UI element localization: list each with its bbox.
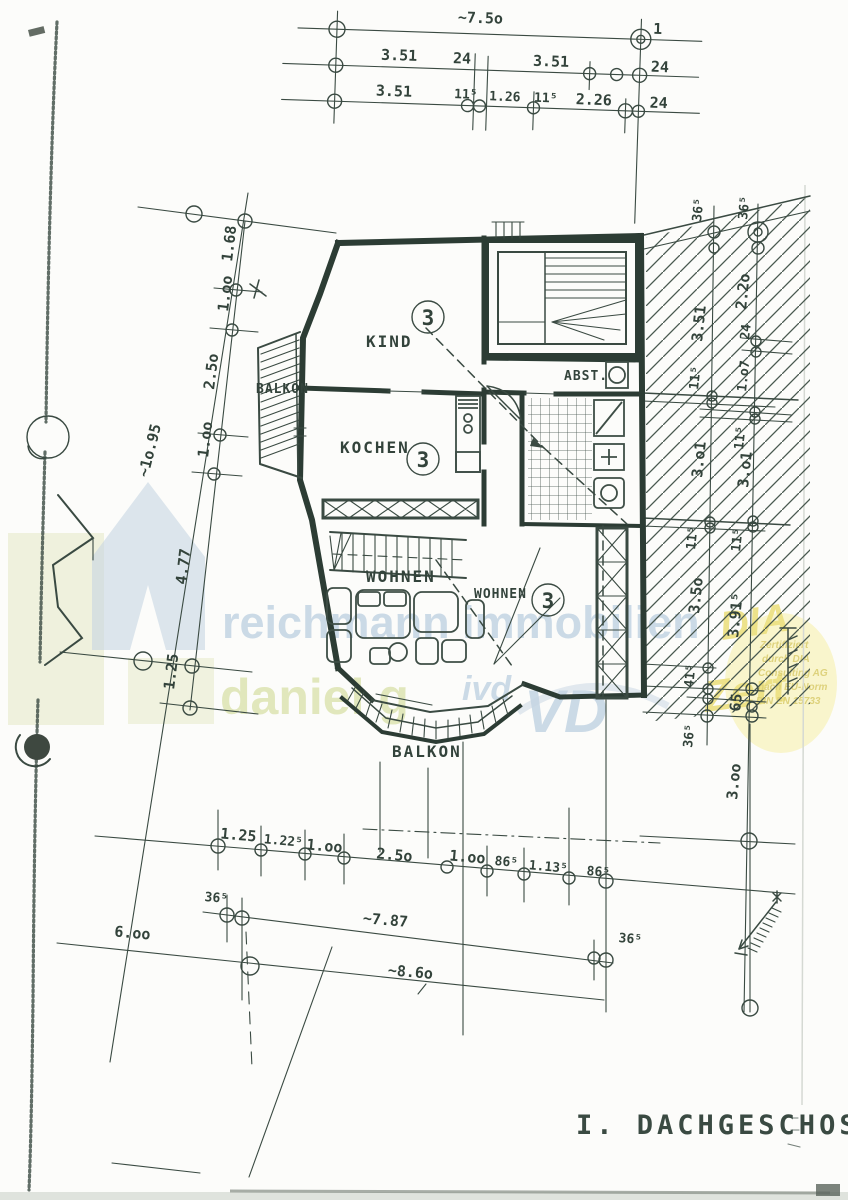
dim-label: 24: [738, 323, 755, 340]
dim-label: 3.oo: [723, 763, 745, 801]
dim-label: 3.51: [381, 46, 418, 65]
scanned-floorplan-page: reichmann immobilien daniel g ivd VD DIA…: [0, 0, 848, 1200]
dim-label: 1.25: [220, 824, 258, 845]
dim-label: 24: [651, 58, 670, 77]
dim-label: 86⁵: [494, 854, 519, 871]
building-plan: [250, 222, 644, 742]
dim-label: 41⁵: [682, 663, 699, 688]
tree-symbol: [27, 416, 69, 458]
dim-label: 11⁵: [534, 91, 558, 107]
tree-symbol: [24, 734, 50, 760]
brand-watermark-line2: daniel g: [220, 669, 409, 725]
slope-symbol: [735, 891, 781, 955]
dim-label: 3.o1: [688, 441, 710, 479]
dim-label: 1.oo: [194, 420, 216, 458]
bottom-dimension-chains: 1.25 1.22⁵ 1.oo 2.5o 1.oo 86⁵ 1.13⁵ 86⁵ …: [57, 700, 795, 1177]
dim-label: 1.22⁵: [263, 832, 303, 850]
dim-label: 3.51: [533, 52, 570, 71]
dim-label: ~7.87: [362, 909, 409, 931]
dim-label: 2.5o: [376, 844, 414, 865]
dim-label: 2.2o: [732, 273, 754, 311]
dim-label: 3.51: [376, 82, 413, 101]
dim-label: 24: [649, 94, 668, 113]
dim-label: 1.oo: [214, 274, 236, 312]
drawing-title: I. DACHGESCHOSS: [576, 1110, 848, 1141]
dim-label: 11⁵: [732, 425, 749, 450]
dim-label: 36⁵: [618, 931, 643, 948]
dim-label: 3.5o: [685, 577, 707, 615]
axis-number: 1: [653, 20, 663, 38]
room-label-abst: ABST.: [564, 369, 608, 384]
dim-top-overall: ~7.5o: [458, 8, 504, 27]
dim-overall-left: ~1o.95: [134, 422, 165, 479]
dim-label: 36⁵: [204, 890, 229, 907]
room-label-kind: KIND: [366, 332, 413, 351]
dim-label: 36⁵: [681, 723, 698, 748]
dim-label: 3.o1: [734, 451, 756, 489]
dim-label: 65: [726, 693, 746, 713]
unit-number: 3: [542, 589, 555, 613]
dim-label: 1.13⁵: [528, 858, 568, 876]
room-label-balkon-bottom: BALKON: [392, 742, 462, 761]
unit-number-badge: 3: [407, 443, 439, 475]
dim-label: 1.oo: [306, 835, 344, 856]
dim-label: 11⁵: [687, 365, 704, 390]
dim-label: 2.5o: [200, 352, 222, 390]
dim-label: 36⁵: [736, 195, 753, 220]
floorplan-drawing: reichmann immobilien daniel g ivd VD DIA…: [0, 0, 848, 1200]
dim-label: 11⁵: [729, 527, 746, 552]
bathroom-fixtures: [594, 400, 624, 508]
unit-number: 3: [422, 306, 435, 330]
bathroom-tiled-floor: [528, 398, 592, 520]
room-label-wohnen-b: WOHNEN: [474, 587, 527, 602]
loggia-railing: [323, 500, 478, 518]
room-label-balkon-left: BALKON: [256, 382, 309, 397]
dim-label: 24: [453, 49, 472, 68]
dim-label: 1.26: [489, 89, 521, 105]
dim-label: 1.68: [218, 224, 240, 262]
roof-hatch-area: [643, 196, 810, 722]
dim-label: 11⁵: [684, 525, 701, 550]
dim-label: 6.oo: [114, 922, 152, 943]
dim-label: 3.51: [688, 305, 710, 343]
dim-label: 86⁵: [586, 864, 611, 881]
top-dimension-grid: ~7.5o 1 3.51 24 3.51 24 3.51 11⁵ 1.26 11…: [278, 2, 703, 225]
stairwell: [486, 222, 638, 356]
dim-label: 11⁵: [454, 87, 478, 103]
dim-label: 1.oo: [449, 846, 487, 867]
room-label-wohnen-a: WOHNEN: [366, 567, 436, 586]
dim-label: ~8.6o: [387, 961, 434, 983]
dim-label: 36⁵: [690, 197, 707, 222]
dim-label: 2.26: [575, 90, 612, 109]
unit-number: 3: [417, 448, 430, 472]
left-balcony: [258, 332, 302, 478]
title-block: I. DACHGESCHOSS: [576, 1110, 848, 1147]
unit-number-badge: 3: [412, 301, 444, 333]
kitchen-counter: [456, 396, 480, 472]
room-label-kochen: KOCHEN: [340, 438, 410, 457]
